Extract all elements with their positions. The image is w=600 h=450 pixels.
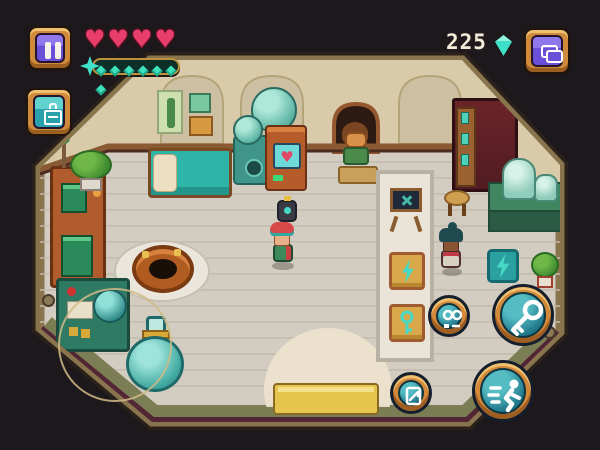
squirrel-head [345, 132, 367, 148]
plant-poster [157, 90, 183, 134]
cauldron-ring [132, 245, 194, 293]
small-orange-frame [189, 116, 213, 136]
attention-eye-marker [277, 200, 297, 222]
energy-segment [137, 65, 148, 76]
cabinet-shelves [456, 107, 476, 187]
energy-segment [151, 65, 162, 76]
marker-crest [284, 196, 291, 201]
heart-icon: ♥ [131, 28, 153, 50]
marker-eye [284, 207, 291, 214]
lab-table [488, 182, 562, 234]
pause-icon [45, 42, 51, 59]
inventory-button-face [531, 35, 563, 67]
npc-shadow [442, 268, 462, 276]
currency-amount: 225 [446, 30, 487, 54]
bolt-display-tile [389, 252, 425, 290]
bolt-icon [399, 259, 417, 283]
potion-bottle [461, 112, 469, 124]
potted-plant [531, 252, 559, 290]
cauldron-stud [142, 251, 149, 258]
game-screen: ♥ [0, 0, 600, 450]
pause-icon [55, 42, 61, 59]
energy-segment [123, 65, 134, 76]
cabinet-light [273, 175, 283, 181]
browsing-customer [438, 230, 466, 280]
cauldron-mouth [149, 259, 177, 279]
interact-button[interactable] [492, 284, 554, 346]
heart-icon: ♥ [84, 28, 106, 50]
glass-jar-large [502, 158, 536, 200]
bolt-wall-tile [487, 249, 519, 283]
red-button [67, 287, 76, 296]
dash-button-face [480, 368, 526, 414]
register-slot [48, 116, 58, 118]
bolt-icon [493, 254, 513, 278]
hearts-row: ♥♥♥♥ [84, 28, 184, 54]
alchemy-still: ♥ [225, 85, 305, 193]
easel-board [390, 188, 422, 212]
bed-pillow [153, 154, 177, 192]
heart-display-screen: ♥ [273, 143, 301, 169]
squirrel-customer [340, 130, 372, 172]
still-glass-orb-small [233, 115, 263, 145]
lab-table-front [488, 212, 562, 232]
npc-body [441, 250, 461, 268]
bush-pot [80, 178, 102, 191]
pause-button[interactable] [28, 26, 72, 70]
plant-bush [531, 252, 559, 278]
register-handle [49, 103, 57, 109]
energy-segment [109, 65, 120, 76]
pause-button-face [35, 33, 65, 63]
virtual-joystick[interactable] [58, 288, 172, 402]
goggles-request-icon [438, 305, 466, 333]
display-carpet [376, 170, 434, 362]
edit-button-face [398, 380, 424, 406]
interact-button-face [500, 292, 546, 338]
player-character [268, 224, 298, 270]
stool [444, 190, 470, 218]
bed [148, 148, 232, 198]
plant-pot [537, 276, 553, 288]
inventory-button[interactable] [524, 28, 570, 74]
register-button[interactable] [26, 88, 72, 136]
easel-leg [414, 216, 423, 232]
heart-icon: ♥ [155, 28, 177, 50]
easel-leg [390, 216, 399, 232]
glass-jar-small [534, 174, 558, 202]
still-cabinet: ♥ [265, 125, 307, 191]
key-icon [503, 295, 549, 341]
stool-leg [448, 204, 452, 216]
energy-segment [95, 65, 106, 76]
potion-bottle [461, 154, 469, 166]
customer-request-badge[interactable] [428, 295, 470, 337]
blueprint-icon [400, 382, 428, 410]
register-button-face [33, 95, 65, 129]
energy-bar [92, 58, 180, 75]
energy-segment [165, 65, 176, 76]
squirrel-body [343, 147, 369, 165]
potted-bush [70, 150, 112, 192]
potion-bottle [461, 133, 469, 145]
cauldron-stud [174, 249, 181, 256]
player-hair-goggles [270, 222, 294, 236]
stool-leg [462, 204, 466, 216]
edit-button[interactable] [390, 372, 432, 414]
request-badge-face [436, 303, 462, 329]
dash-button[interactable] [472, 360, 534, 422]
satchel-icon [546, 50, 563, 63]
player-shadow [272, 262, 294, 270]
frame-screw [42, 294, 55, 307]
poster-plant-art [167, 98, 175, 128]
still-porthole [245, 159, 263, 177]
key-icon [392, 308, 422, 338]
energy-segment [95, 84, 106, 95]
console-screen [61, 235, 93, 277]
small-green-frame [189, 93, 211, 113]
heart-icon: ♥ [108, 28, 130, 50]
register-icon [44, 110, 62, 125]
npc-hair-bun [448, 222, 457, 231]
easel-sign [388, 188, 426, 232]
player-body [273, 244, 293, 262]
key-display-tile [389, 304, 425, 342]
dash-runner-icon [483, 371, 529, 417]
bush-foliage [70, 150, 112, 180]
